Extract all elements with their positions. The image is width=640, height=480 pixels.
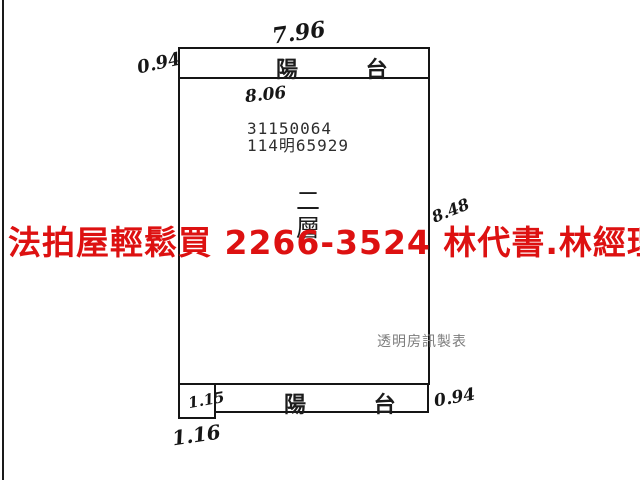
top-balcony-label: 陽 台	[276, 52, 418, 84]
scan-left-border-line	[2, 0, 4, 480]
bottom-balcony-label: 陽 台	[284, 387, 426, 419]
dimension-bottom-right: 0.94	[433, 385, 477, 412]
serial-line-2: 114明65929	[247, 137, 349, 154]
maker-watermark-text: 透明房訊製表	[377, 331, 467, 351]
dimension-bottom-left-outer: 1.16	[171, 420, 223, 451]
dimension-top-width: 7.96	[270, 16, 327, 49]
floorplan-scan: 陽 台 陽 台 二層 31150064 114明65929 透明房訊製表 7.9…	[0, 0, 640, 480]
red-advert-overlay-text: 法拍屋輕鬆買 2266-3524 林代書.林經理	[8, 216, 640, 264]
dimension-top-left-height: 0.94	[135, 49, 182, 79]
serial-line-1: 31150064	[247, 120, 349, 137]
serial-numbers: 31150064 114明65929	[247, 120, 349, 154]
